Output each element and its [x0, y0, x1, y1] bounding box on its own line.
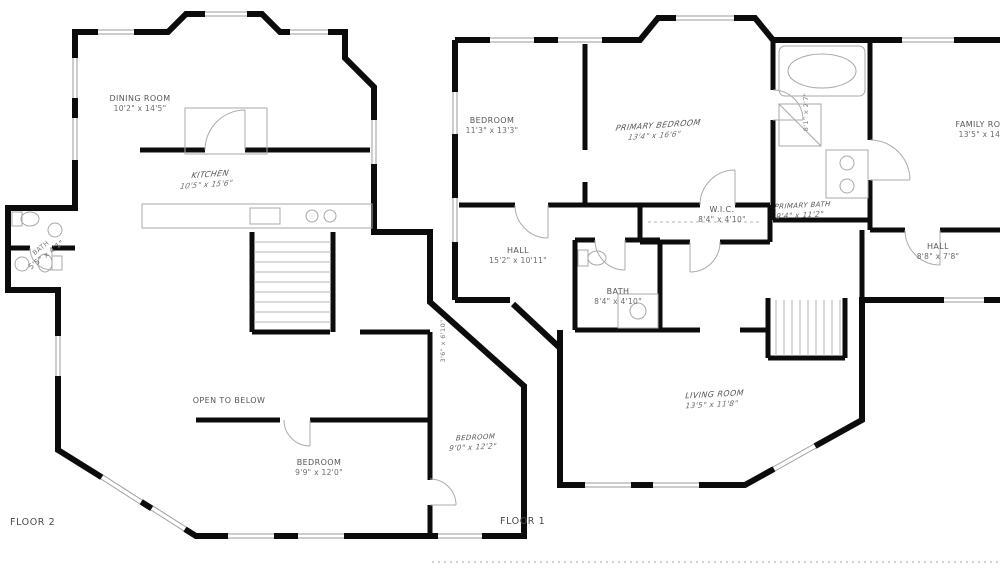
floor1-stairs — [776, 300, 840, 356]
floor1-interior-walls — [455, 40, 1000, 358]
floor2-stairs — [254, 242, 331, 322]
floor2-plan — [8, 10, 524, 540]
floor2-title: FLOOR 2 — [10, 517, 55, 528]
floor1-windows — [451, 14, 984, 489]
floor1-plan — [451, 14, 1000, 489]
floor2-bath-fixtures — [12, 212, 62, 272]
floor-plan-canvas: DINING ROOM 10'2" x 14'5" KITCHEN 10'5" … — [0, 0, 1000, 569]
floorplan-drawing — [0, 0, 1000, 569]
floor2-exterior-walls — [8, 14, 524, 536]
primary-bath-fixtures — [779, 46, 868, 198]
floor2-windows — [54, 10, 482, 540]
floor1-exterior-walls — [455, 18, 1000, 485]
floor1-title: FLOOR 1 — [500, 516, 545, 527]
floor1-bath-fixtures — [578, 250, 658, 328]
floor1-doors — [515, 90, 940, 272]
floor2-doors — [30, 110, 456, 505]
kitchen-counter — [142, 108, 372, 228]
